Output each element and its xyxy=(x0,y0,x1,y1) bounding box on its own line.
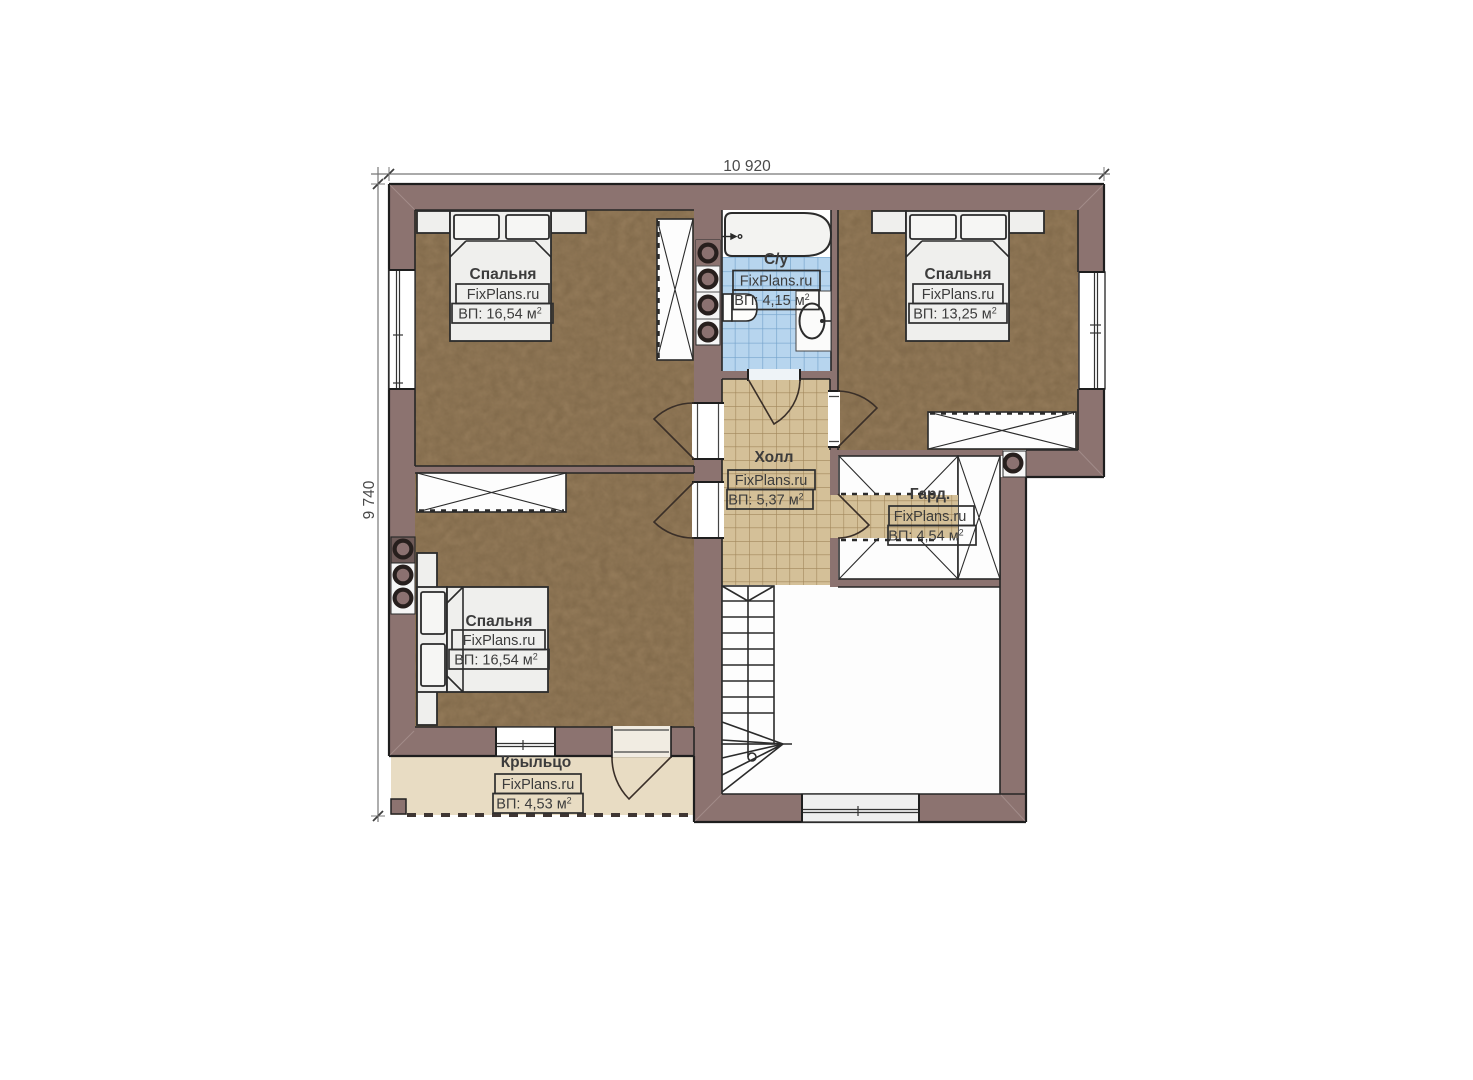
svg-text:Холл: Холл xyxy=(755,449,794,466)
svg-text:FixPlans.ru: FixPlans.ru xyxy=(740,274,813,290)
svg-text:ВП: 4,53 м2: ВП: 4,53 м2 xyxy=(496,796,571,813)
svg-text:FixPlans.ru: FixPlans.ru xyxy=(467,287,540,303)
svg-text:9 740: 9 740 xyxy=(361,480,378,519)
svg-text:Спальня: Спальня xyxy=(925,266,992,283)
svg-text:Гард.: Гард. xyxy=(910,486,950,503)
svg-text:FixPlans.ru: FixPlans.ru xyxy=(894,509,967,525)
svg-text:ВП: 16,54 м2: ВП: 16,54 м2 xyxy=(454,652,537,669)
svg-text:ВП: 13,25 м2: ВП: 13,25 м2 xyxy=(913,306,996,323)
svg-text:FixPlans.ru: FixPlans.ru xyxy=(922,287,995,303)
svg-text:Крыльцо: Крыльцо xyxy=(501,754,572,771)
svg-text:Спальня: Спальня xyxy=(470,266,537,283)
svg-text:ВП: 4,15 м2: ВП: 4,15 м2 xyxy=(734,292,809,309)
svg-text:Спальня: Спальня xyxy=(466,613,533,630)
svg-text:ВП: 5,37 м2: ВП: 5,37 м2 xyxy=(728,492,803,509)
svg-text:ВП: 4,54 м2: ВП: 4,54 м2 xyxy=(888,528,963,545)
svg-text:FixPlans.ru: FixPlans.ru xyxy=(463,633,536,649)
svg-text:С/у: С/у xyxy=(764,251,789,268)
svg-text:ВП: 16,54 м2: ВП: 16,54 м2 xyxy=(458,306,541,323)
svg-text:FixPlans.ru: FixPlans.ru xyxy=(502,777,575,793)
svg-text:FixPlans.ru: FixPlans.ru xyxy=(735,473,808,489)
svg-text:10 920: 10 920 xyxy=(723,158,771,175)
